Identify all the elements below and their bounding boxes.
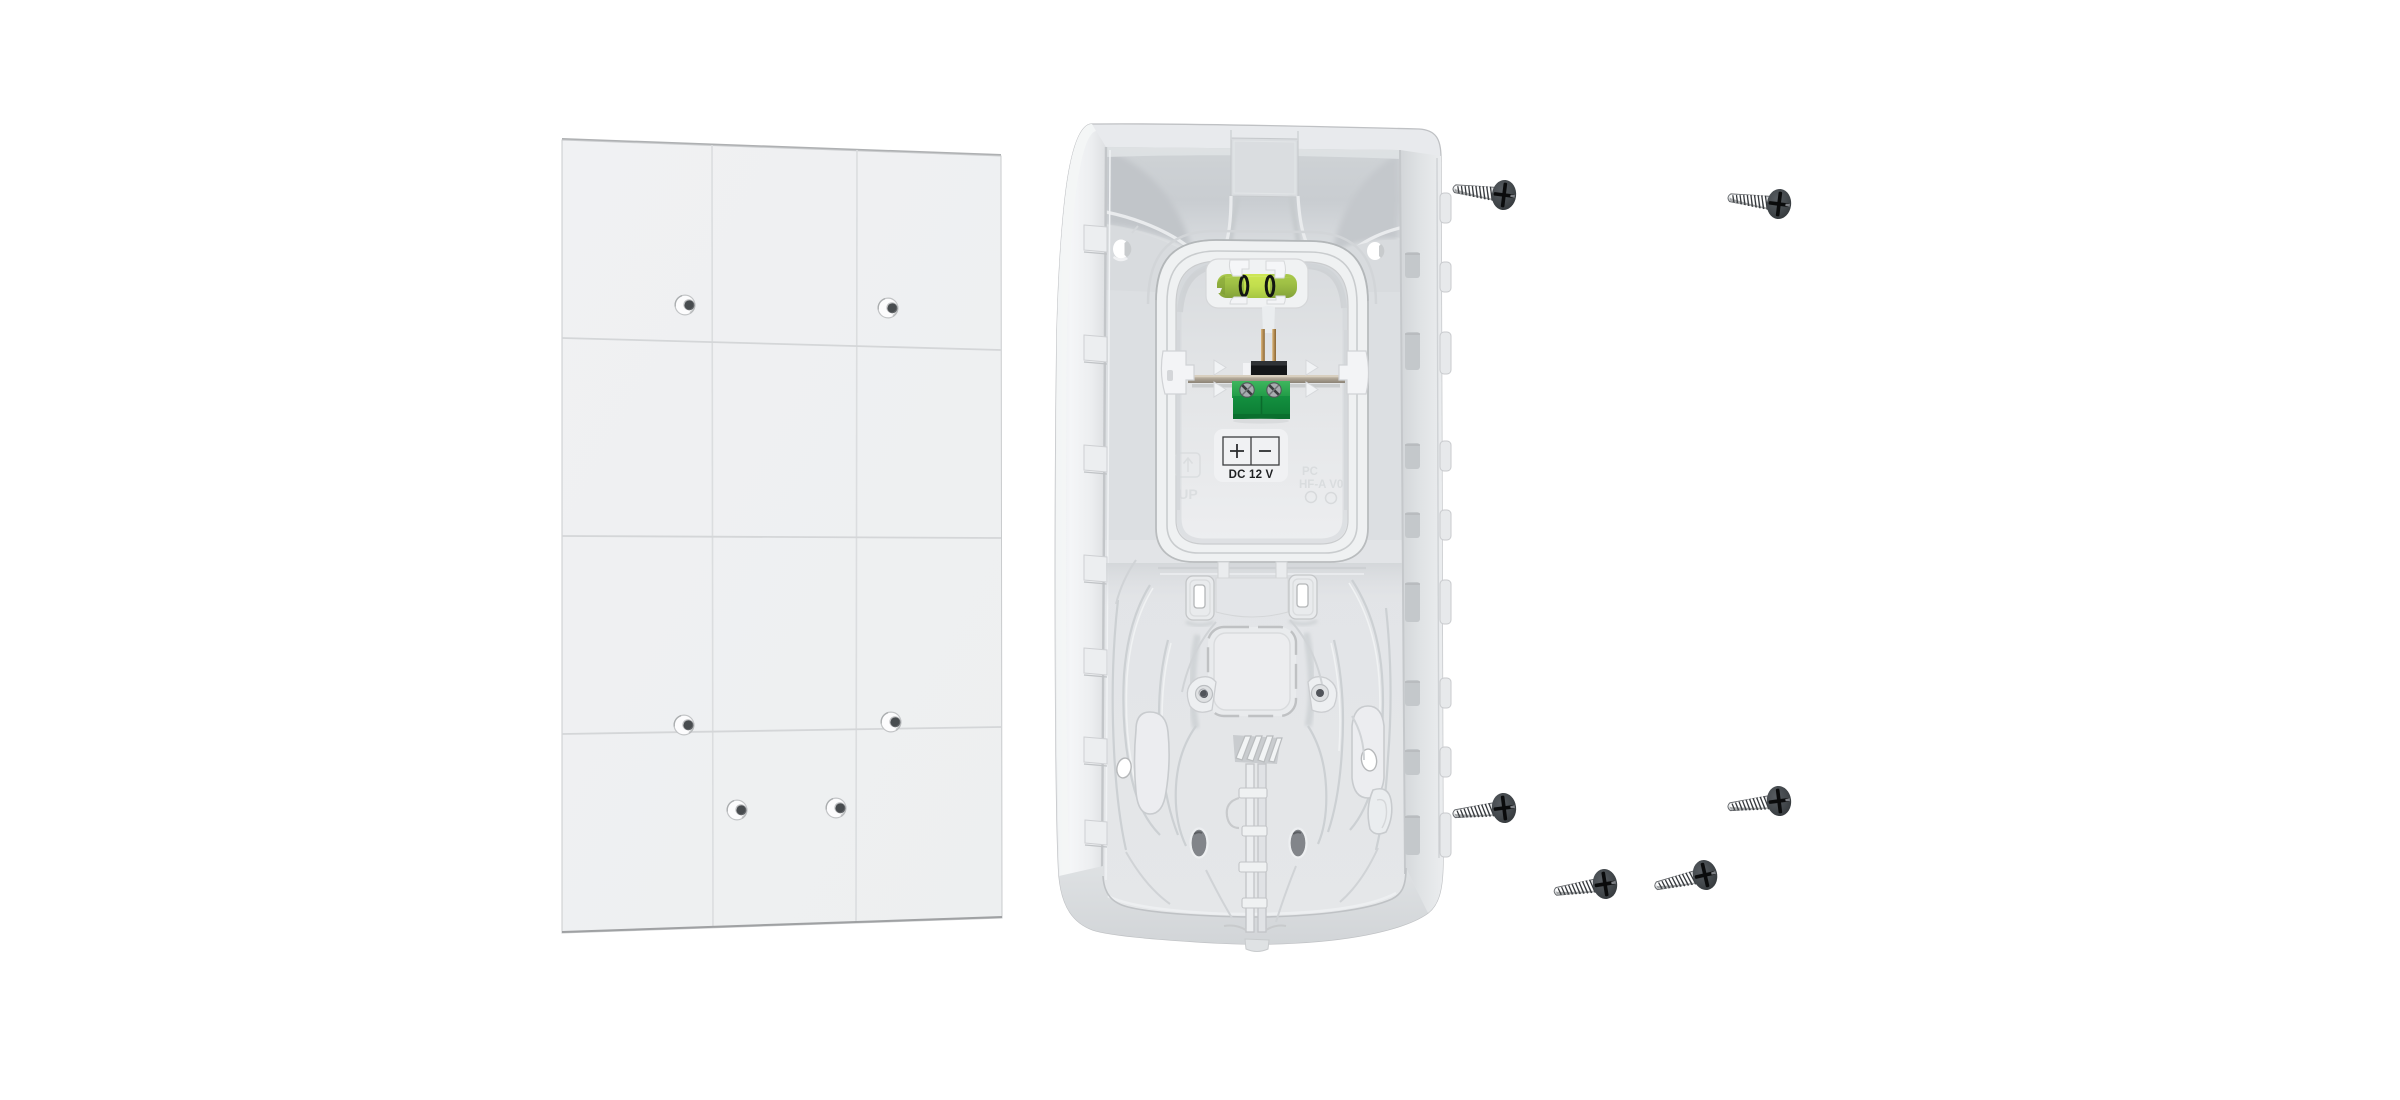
svg-text:HF-A V0: HF-A V0: [1299, 479, 1343, 491]
svg-text:PC: PC: [1302, 466, 1318, 478]
svg-text:UP: UP: [1178, 486, 1197, 502]
svg-text:DC 12 V: DC 12 V: [1229, 469, 1274, 481]
